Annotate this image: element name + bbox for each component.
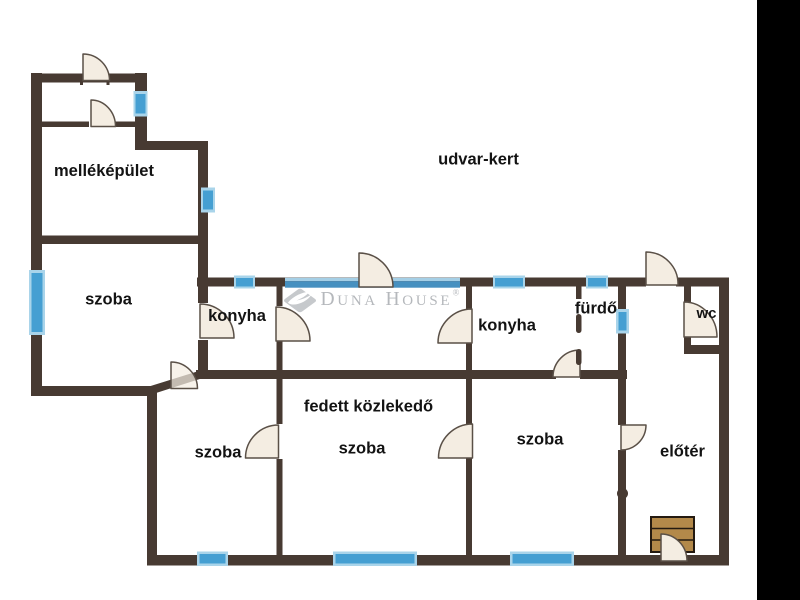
svg-text:szoba: szoba — [517, 431, 565, 449]
svg-text:konyha: konyha — [478, 317, 537, 335]
svg-text:melléképület: melléképület — [54, 162, 154, 180]
svg-text:fedett közlekedő: fedett közlekedő — [304, 398, 433, 416]
svg-text:®: ® — [453, 288, 460, 298]
svg-text:szoba: szoba — [195, 444, 243, 462]
svg-text:előtér: előtér — [660, 443, 706, 461]
svg-text:udvar-kert: udvar-kert — [438, 151, 519, 169]
svg-text:szoba: szoba — [339, 440, 387, 458]
svg-text:fürdő: fürdő — [575, 300, 617, 318]
svg-text:konyha: konyha — [208, 307, 267, 325]
svg-text:wc: wc — [695, 305, 716, 322]
svg-text:szoba: szoba — [85, 291, 133, 309]
svg-text:DUNA HOUSE: DUNA HOUSE — [321, 289, 453, 310]
